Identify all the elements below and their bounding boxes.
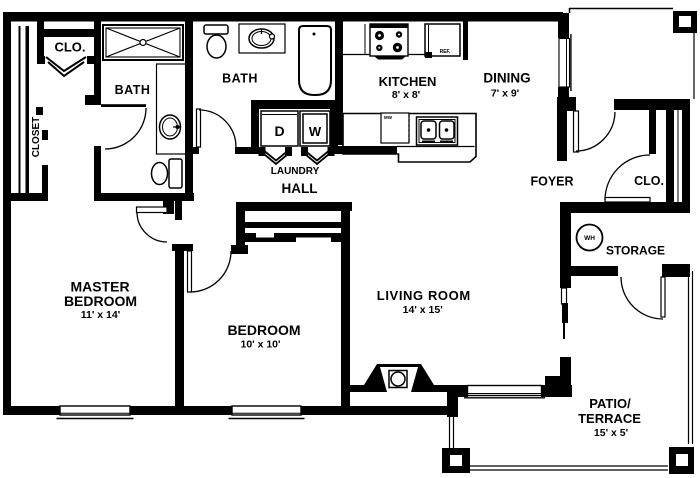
- svg-text:FOYER: FOYER: [530, 175, 573, 189]
- svg-text:BATH: BATH: [222, 72, 258, 86]
- svg-text:8' x 8': 8' x 8': [392, 89, 420, 101]
- svg-text:KITCHEN: KITCHEN: [379, 74, 437, 89]
- svg-text:MW: MW: [384, 115, 393, 120]
- svg-text:LIVING ROOM: LIVING ROOM: [377, 288, 471, 303]
- svg-text:HALL: HALL: [282, 181, 318, 196]
- svg-text:CLOSET: CLOSET: [31, 117, 42, 158]
- svg-text:BEDROOM: BEDROOM: [64, 293, 137, 309]
- svg-text:WH: WH: [584, 235, 595, 242]
- svg-text:D: D: [274, 123, 284, 139]
- svg-text:STORAGE: STORAGE: [606, 244, 665, 258]
- svg-text:DINING: DINING: [483, 71, 530, 86]
- svg-text:14' x 15': 14' x 15': [403, 304, 443, 316]
- svg-text:REF.: REF.: [440, 49, 451, 55]
- svg-text:15' x 5': 15' x 5': [594, 427, 628, 439]
- svg-text:10' x 10': 10' x 10': [240, 339, 280, 351]
- svg-text:TERRACE: TERRACE: [578, 411, 641, 426]
- svg-text:W: W: [309, 124, 322, 139]
- svg-text:CLO.: CLO.: [54, 40, 85, 55]
- svg-text:BEDROOM: BEDROOM: [227, 322, 300, 338]
- svg-text:PATIO/: PATIO/: [589, 396, 631, 411]
- svg-text:CLO.: CLO.: [634, 174, 664, 188]
- svg-text:7' x 9': 7' x 9': [491, 88, 519, 100]
- svg-text:LAUNDRY: LAUNDRY: [271, 166, 320, 177]
- svg-text:11' x 14': 11' x 14': [81, 309, 120, 321]
- svg-text:BATH: BATH: [115, 83, 151, 97]
